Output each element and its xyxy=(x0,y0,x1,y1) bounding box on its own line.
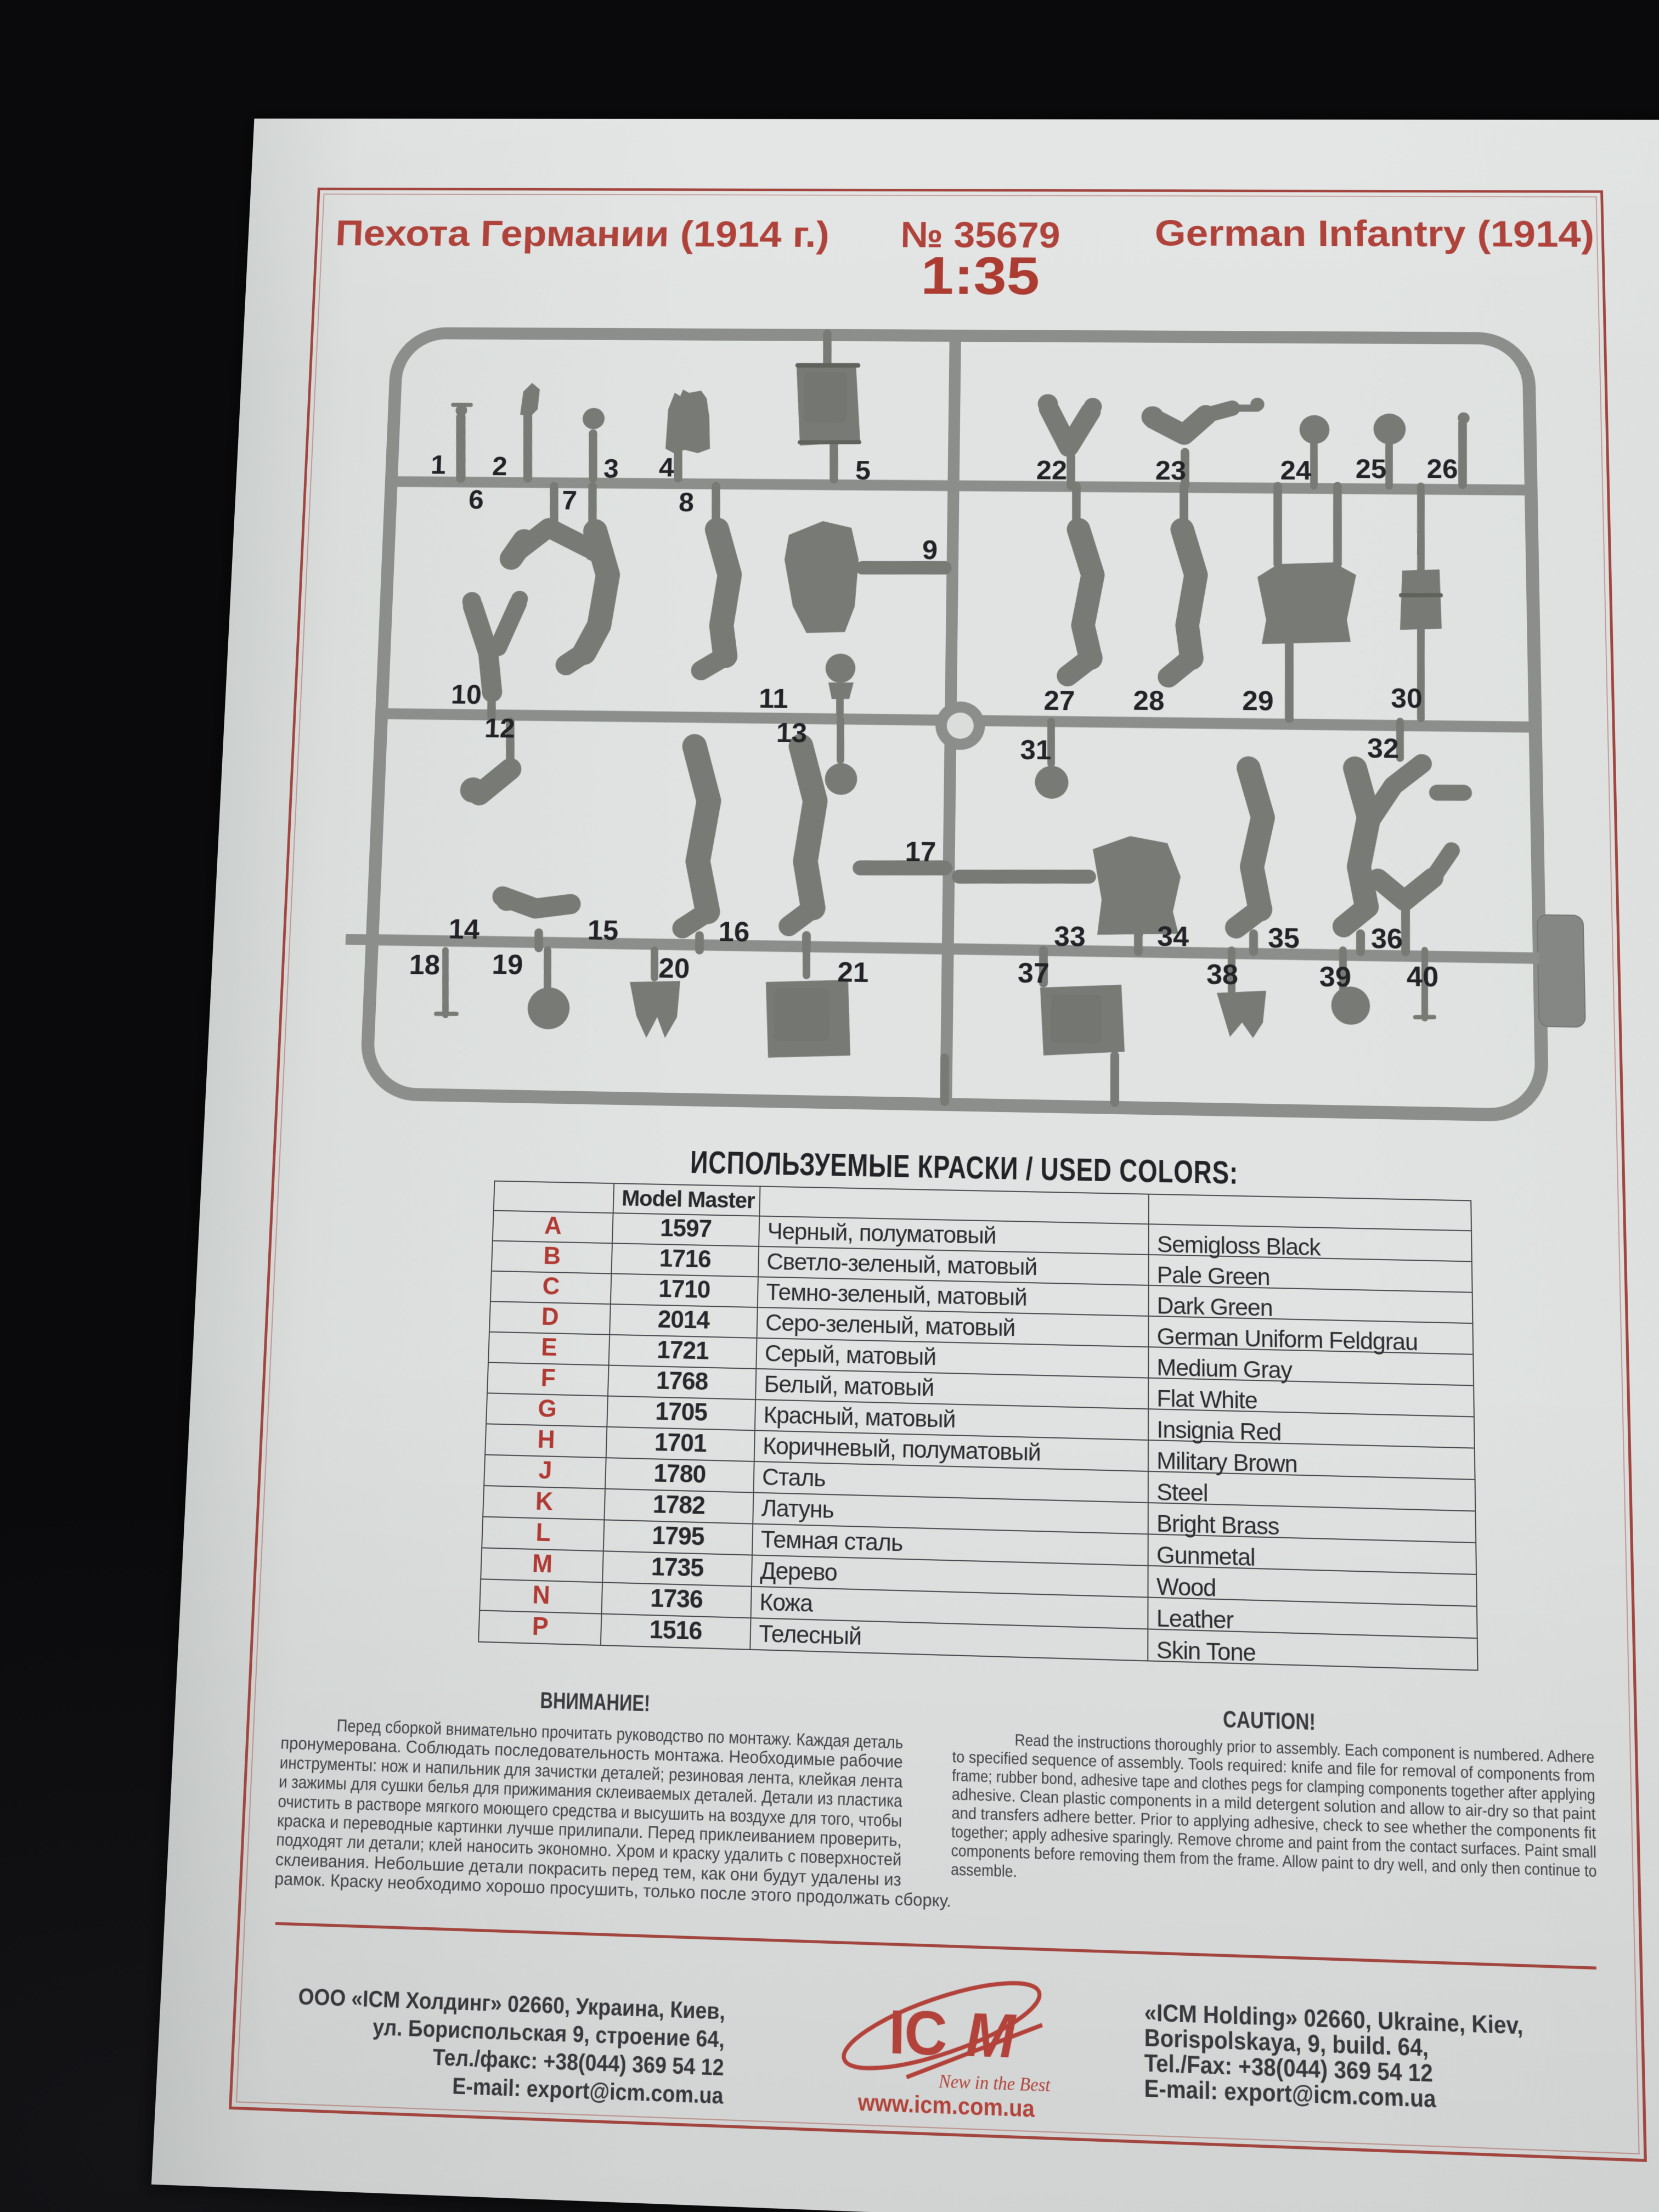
svg-text:24: 24 xyxy=(1280,455,1312,485)
svg-text:12: 12 xyxy=(484,713,516,743)
svg-text:27: 27 xyxy=(1043,685,1075,716)
svg-text:IC: IC xyxy=(888,1997,946,2068)
svg-text:31: 31 xyxy=(1020,734,1051,765)
svg-text:8: 8 xyxy=(678,487,694,517)
svg-text:34: 34 xyxy=(1157,921,1189,952)
svg-text:40: 40 xyxy=(1406,960,1438,992)
svg-text:26: 26 xyxy=(1426,453,1458,483)
svg-text:16: 16 xyxy=(718,916,750,947)
svg-text:11: 11 xyxy=(759,683,789,714)
svg-text:15: 15 xyxy=(587,914,619,946)
svg-text:33: 33 xyxy=(1054,921,1086,952)
svg-text:28: 28 xyxy=(1133,685,1164,716)
svg-text:30: 30 xyxy=(1391,682,1423,714)
svg-text:23: 23 xyxy=(1155,455,1186,485)
svg-text:39: 39 xyxy=(1319,960,1352,992)
svg-text:35: 35 xyxy=(1268,922,1300,954)
svg-text:21: 21 xyxy=(837,956,869,988)
svg-text:19: 19 xyxy=(492,949,523,980)
svg-text:13: 13 xyxy=(776,717,807,748)
svg-text:2: 2 xyxy=(492,452,507,481)
svg-text:18: 18 xyxy=(409,949,441,980)
svg-text:17: 17 xyxy=(905,836,936,867)
svg-text:10: 10 xyxy=(450,679,482,710)
svg-text:5: 5 xyxy=(855,455,871,486)
svg-text:32: 32 xyxy=(1367,732,1399,764)
svg-text:36: 36 xyxy=(1371,923,1403,955)
svg-text:37: 37 xyxy=(1018,957,1049,989)
svg-text:9: 9 xyxy=(922,534,938,565)
svg-text:6: 6 xyxy=(468,484,484,514)
svg-text:22: 22 xyxy=(1036,455,1067,485)
svg-text:20: 20 xyxy=(658,952,690,984)
svg-text:M: M xyxy=(965,2000,1017,2071)
svg-text:1: 1 xyxy=(430,450,447,479)
svg-text:3: 3 xyxy=(603,454,619,483)
svg-text:7: 7 xyxy=(561,486,577,516)
svg-text:4: 4 xyxy=(658,453,674,482)
svg-text:29: 29 xyxy=(1242,685,1273,716)
svg-text:14: 14 xyxy=(448,913,480,945)
svg-text:25: 25 xyxy=(1355,453,1386,483)
svg-text:38: 38 xyxy=(1206,958,1238,991)
svg-text:www.icm.com.ua: www.icm.com.ua xyxy=(857,2089,1035,2122)
